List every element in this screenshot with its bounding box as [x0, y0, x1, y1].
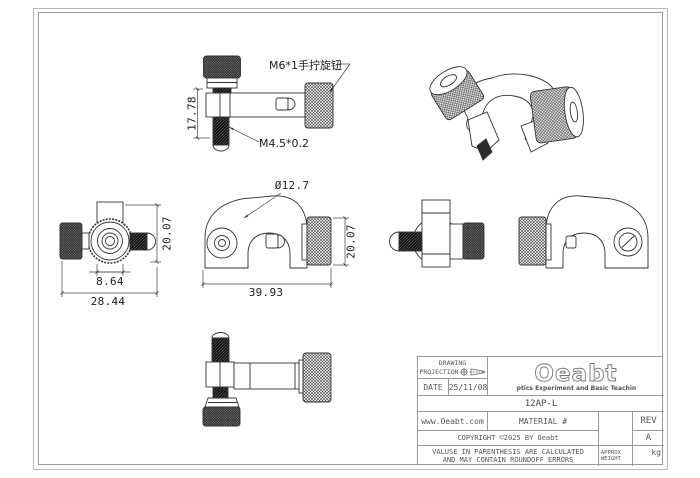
rev-value: A: [633, 431, 664, 446]
view-isometric: [425, 61, 587, 160]
dim-front-total-width: 39.93: [244, 286, 288, 299]
drawing-sheet: M6*1手拧旋钮 M4.5*0.2 17.78 20.07 8.64 28.44…: [0, 0, 700, 478]
callout-bore-diameter: Ø12.7: [264, 179, 320, 192]
title-block: DRAWING PROJECTION DATE 25/11/08 Oeabt: [417, 356, 663, 465]
weight-label-line2: WEIGHT: [601, 456, 621, 462]
disclaimer-cell: VALUSE IN PARENTHESIS ARE CALCULATED AND…: [418, 446, 599, 466]
disclaimer-line2: AND MAY CONTAIN ROUNDOFF ERRORS: [443, 456, 574, 464]
callout-set-screw: M4.5*0.2: [259, 137, 309, 150]
date-label-cell: DATE: [418, 379, 449, 396]
dim-top-height: 20.07: [161, 212, 174, 256]
rev-label: REV: [633, 412, 664, 431]
projection-cell: DRAWING PROJECTION: [418, 357, 488, 379]
drawing-label: DRAWING: [439, 359, 466, 367]
blank-cell: [599, 412, 633, 446]
third-angle-projection-icon: [460, 367, 486, 377]
material-label: MATERIAL #: [488, 412, 599, 431]
copyright-text: COPYRIGHT ©2025 BY Oeabt: [418, 431, 599, 446]
dim-top-total-width: 28.44: [86, 295, 130, 308]
dim-top-hub-width: 8.64: [88, 275, 132, 288]
logo-text: Oeabt: [534, 361, 617, 387]
approx-weight-cell: APPROX WEIGHT: [599, 446, 633, 466]
website: www.Oeabt.com: [418, 412, 488, 431]
oeabt-logo: Oeabt Optics Experiment and Basic Teachi…: [516, 358, 636, 394]
view-front-right: [519, 196, 648, 268]
logo-cell: Oeabt Optics Experiment and Basic Teachi…: [488, 357, 664, 396]
dim-front-knob-height: 20.07: [345, 220, 358, 264]
logo-tagline: Optics Experiment and Basic Teaching: [516, 385, 636, 392]
dim-side-height: 17.78: [186, 92, 199, 136]
date-value: 25/11/08: [449, 379, 488, 396]
disclaimer-line1: VALUSE IN PARENTHESIS ARE CALCULATED: [432, 448, 584, 456]
projection-label: PROJECTION: [419, 368, 458, 376]
view-front-center: [203, 193, 349, 288]
view-bottom-left: [203, 333, 331, 427]
callout-thumb-screw: M6*1手拧旋钮: [269, 57, 342, 73]
view-bottom-middle: [390, 200, 485, 267]
weight-unit: kg: [633, 446, 664, 466]
part-number: 12AP-L: [418, 396, 664, 412]
